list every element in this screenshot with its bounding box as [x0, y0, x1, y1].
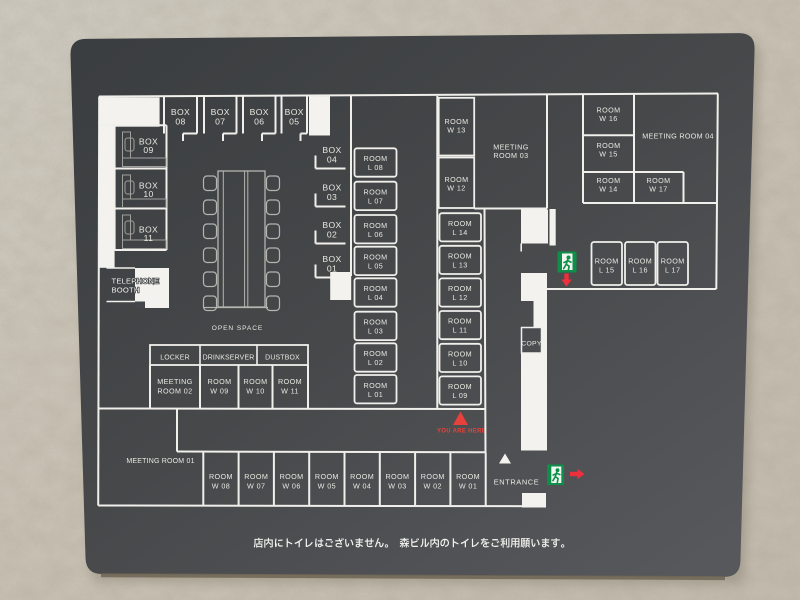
svg-text:W 05: W 05: [318, 482, 336, 491]
svg-text:ROOM: ROOM: [208, 377, 232, 386]
svg-text:06: 06: [254, 117, 264, 127]
svg-text:ENTRANCE: ENTRANCE: [494, 478, 539, 487]
svg-text:L 02: L 02: [368, 358, 383, 367]
svg-text:ROOM: ROOM: [448, 284, 472, 293]
svg-text:OPEN SPACE: OPEN SPACE: [212, 325, 263, 332]
svg-text:W 01: W 01: [459, 482, 477, 491]
svg-text:BOX: BOX: [211, 107, 230, 117]
svg-text:ROOM 02: ROOM 02: [157, 387, 192, 396]
svg-text:ROOM: ROOM: [364, 221, 388, 230]
svg-text:L 01: L 01: [368, 390, 383, 399]
svg-text:L 13: L 13: [452, 260, 467, 269]
svg-text:ROOM: ROOM: [278, 377, 302, 386]
svg-text:01: 01: [327, 264, 337, 274]
svg-text:W 02: W 02: [424, 482, 442, 491]
svg-text:ROOM: ROOM: [628, 257, 652, 266]
svg-text:ROOM 03: ROOM 03: [493, 151, 528, 160]
svg-text:BOOTH: BOOTH: [112, 286, 140, 295]
svg-text:W 16: W 16: [599, 114, 617, 123]
svg-text:04: 04: [327, 155, 337, 165]
svg-text:05: 05: [289, 117, 299, 127]
svg-text:W 06: W 06: [282, 482, 300, 491]
svg-text:YOU ARE HERE: YOU ARE HERE: [437, 429, 486, 435]
svg-text:L 15: L 15: [599, 266, 614, 275]
svg-text:08: 08: [175, 117, 185, 127]
svg-text:ROOM: ROOM: [385, 472, 409, 481]
svg-text:ROOM: ROOM: [448, 251, 472, 260]
svg-text:W 13: W 13: [447, 126, 465, 135]
svg-text:ROOM: ROOM: [364, 349, 388, 358]
svg-text:L 06: L 06: [368, 230, 383, 239]
svg-text:L 10: L 10: [452, 358, 467, 367]
svg-text:L 12: L 12: [452, 293, 467, 302]
svg-text:MEETING ROOM 01: MEETING ROOM 01: [126, 458, 194, 465]
svg-text:ROOM: ROOM: [595, 257, 619, 266]
svg-text:BOX: BOX: [285, 107, 304, 117]
svg-text:BOX: BOX: [322, 183, 341, 193]
svg-text:W 15: W 15: [599, 150, 617, 159]
svg-text:W 04: W 04: [353, 482, 371, 491]
svg-text:DUSTBOX: DUSTBOX: [265, 355, 300, 362]
svg-text:ROOM: ROOM: [364, 381, 388, 390]
svg-text:W 11: W 11: [281, 387, 299, 396]
svg-text:10: 10: [143, 189, 153, 199]
svg-text:L 03: L 03: [368, 327, 383, 336]
svg-text:W 17: W 17: [649, 184, 667, 193]
svg-text:W 08: W 08: [212, 482, 230, 491]
svg-text:L 16: L 16: [633, 266, 648, 275]
svg-text:L 11: L 11: [453, 326, 468, 335]
svg-text:L 04: L 04: [368, 293, 383, 302]
svg-text:ROOM: ROOM: [448, 382, 472, 391]
svg-text:L 14: L 14: [452, 228, 467, 237]
svg-text:COPY: COPY: [521, 341, 542, 348]
svg-text:ROOM: ROOM: [315, 472, 339, 481]
svg-text:ROOM: ROOM: [364, 253, 388, 262]
svg-text:ROOM: ROOM: [456, 472, 480, 481]
svg-text:LOCKER: LOCKER: [160, 355, 190, 362]
svg-text:03: 03: [327, 192, 337, 202]
svg-text:W 03: W 03: [388, 482, 406, 491]
svg-text:MEETING: MEETING: [157, 377, 193, 386]
svg-text:BOX: BOX: [250, 107, 269, 117]
svg-text:ROOM: ROOM: [448, 317, 472, 326]
svg-text:BOX: BOX: [171, 107, 190, 117]
svg-text:ROOM: ROOM: [421, 472, 445, 481]
svg-text:ROOM: ROOM: [448, 219, 472, 228]
svg-text:02: 02: [327, 230, 337, 240]
svg-text:W 07: W 07: [247, 482, 265, 491]
svg-text:ROOM: ROOM: [364, 284, 388, 293]
svg-text:L 09: L 09: [452, 391, 467, 400]
svg-text:L 17: L 17: [665, 266, 680, 275]
svg-text:ROOM: ROOM: [244, 472, 268, 481]
svg-text:L 05: L 05: [368, 262, 383, 271]
svg-text:ROOM: ROOM: [661, 257, 685, 266]
svg-text:ROOM: ROOM: [448, 349, 472, 358]
svg-text:BOX: BOX: [322, 254, 341, 264]
svg-text:TELEPHONE: TELEPHONE: [112, 277, 160, 286]
svg-text:DRINKSERVER: DRINKSERVER: [203, 355, 255, 362]
svg-text:MEETING ROOM 04: MEETING ROOM 04: [642, 132, 714, 141]
svg-text:ROOM: ROOM: [364, 188, 388, 197]
svg-text:BOX: BOX: [322, 145, 341, 155]
svg-text:ROOM: ROOM: [209, 472, 233, 481]
svg-text:07: 07: [215, 117, 225, 127]
svg-text:L 08: L 08: [368, 163, 383, 172]
svg-text:W 12: W 12: [447, 184, 465, 193]
svg-text:09: 09: [143, 145, 153, 155]
svg-text:W 14: W 14: [599, 184, 617, 193]
svg-text:W 09: W 09: [210, 387, 228, 396]
svg-text:ROOM: ROOM: [350, 472, 374, 481]
svg-text:ROOM: ROOM: [280, 472, 304, 481]
svg-text:W 10: W 10: [246, 387, 264, 396]
svg-text:ROOM: ROOM: [364, 154, 388, 163]
svg-text:BOX: BOX: [322, 220, 341, 230]
svg-text:ROOM: ROOM: [244, 377, 268, 386]
svg-text:L 07: L 07: [368, 197, 383, 206]
svg-text:ROOM: ROOM: [364, 318, 388, 327]
svg-text:11: 11: [144, 233, 154, 243]
